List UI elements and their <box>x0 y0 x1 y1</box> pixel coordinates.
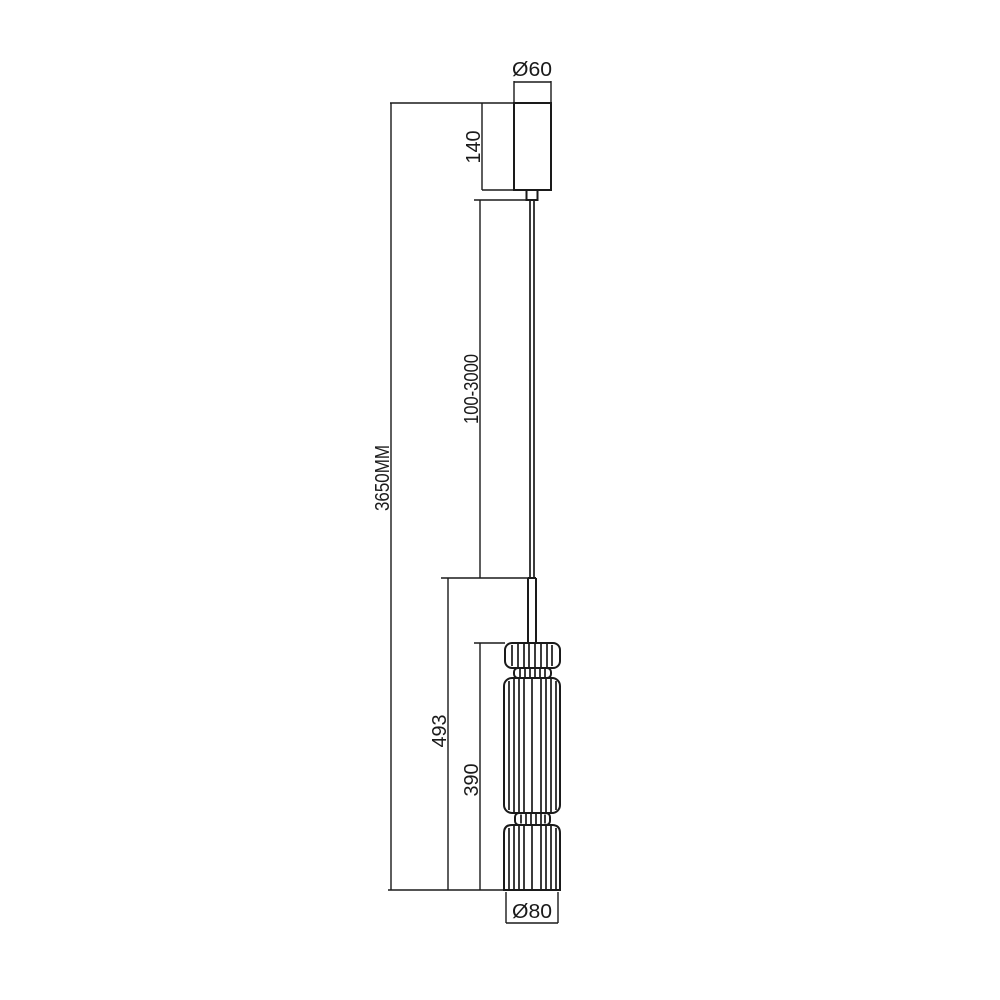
suspension-cable <box>530 200 534 578</box>
suspension-length-label: 100-3000 <box>461 354 483 424</box>
shade-height-label: 390 <box>461 764 483 797</box>
shade-upper-body <box>504 678 560 813</box>
shade-neck-ring <box>514 668 551 678</box>
stem-rod <box>528 578 536 643</box>
dimension-drawing-canvas: 3650MM Ø60 140 100-3000 <box>0 0 1000 1000</box>
shade-lower-body <box>504 825 560 890</box>
canopy-diameter-dimension: Ø60 <box>512 59 552 103</box>
suspension-length-dimension: 100-3000 <box>461 200 527 578</box>
total-height-label: 3650MM <box>372 445 394 511</box>
canopy-diameter-label: Ø60 <box>512 59 552 81</box>
pendant-lamp-drawing: 3650MM Ø60 140 100-3000 <box>0 0 1000 1000</box>
canopy-height-dimension: 140 <box>463 103 485 190</box>
ceiling-canopy <box>482 103 551 200</box>
body-assembly-height-dimension: 493 <box>429 578 451 890</box>
shade-waist-ring <box>515 813 550 825</box>
body-assembly-height-label: 493 <box>429 715 451 748</box>
lamp-shade <box>504 643 560 890</box>
total-height-dimension: 3650MM <box>372 103 394 890</box>
shade-diameter-dimension: Ø80 <box>506 892 558 923</box>
canopy-height-label: 140 <box>463 131 485 164</box>
cable-connector <box>527 190 538 200</box>
shade-top-cap <box>505 643 560 668</box>
shade-diameter-label: Ø80 <box>512 901 552 923</box>
shade-height-dimension: 390 <box>461 643 505 890</box>
